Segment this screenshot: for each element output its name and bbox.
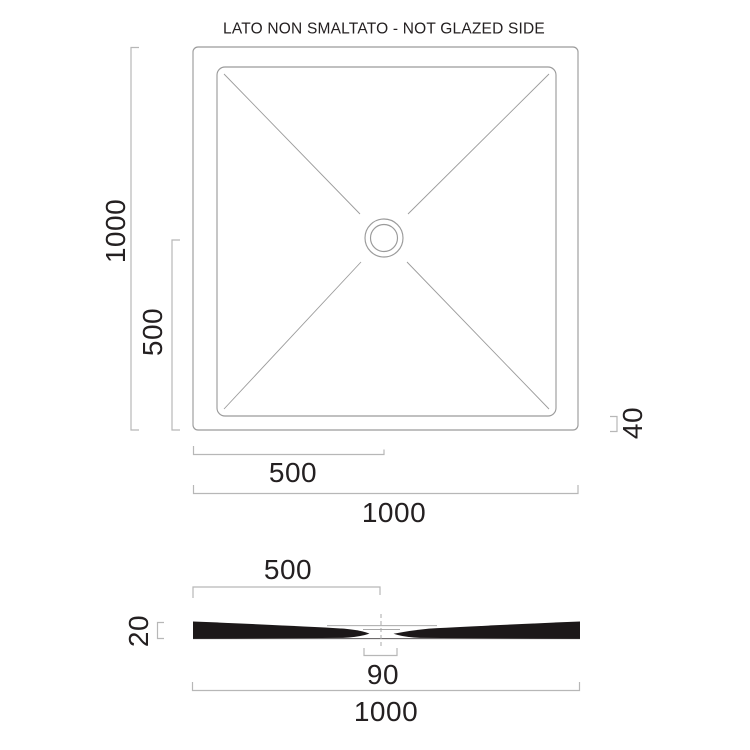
dim-label-plan-width-half: 500	[269, 459, 317, 487]
slope-diagonal-bottom-left	[224, 262, 361, 409]
dim-bracket-section-drain-width	[364, 648, 397, 656]
dim-label-plan-height-half: 500	[139, 308, 167, 356]
section-profile-left	[193, 622, 370, 639]
dim-bracket-section-thickness	[158, 623, 165, 639]
dim-label-section-width-total: 1000	[354, 698, 418, 726]
drawing-title: LATO NON SMALTATO - NOT GLAZED SIDE	[223, 21, 545, 37]
technical-drawing-sheet: LATO NON SMALTATO - NOT GLAZED SIDE 1000…	[0, 0, 750, 750]
tray-outer-rim	[193, 47, 578, 430]
dim-bracket-plan-width-total	[194, 485, 579, 494]
dim-label-plan-width-total: 1000	[362, 499, 426, 527]
plan-view	[131, 47, 617, 494]
slope-diagonal-top-left	[224, 74, 360, 214]
slope-diagonal-bottom-right	[407, 262, 549, 409]
drawing-linework	[0, 0, 750, 750]
dim-bracket-plan-edge-height	[610, 417, 617, 432]
dim-label-section-width-half: 500	[264, 556, 312, 584]
dim-bracket-plan-height-total	[131, 48, 139, 431]
dim-bracket-section-width-half	[193, 587, 380, 598]
dim-label-plan-height-total: 1000	[102, 199, 130, 263]
drain-inner-circle	[371, 225, 398, 252]
dim-bracket-plan-width-half	[194, 446, 385, 455]
dim-label-plan-edge-height: 40	[619, 407, 647, 439]
dim-bracket-plan-height-half	[172, 240, 180, 430]
section-profile-right	[394, 622, 581, 639]
dim-label-section-thickness: 20	[125, 615, 153, 647]
slope-diagonal-top-right	[408, 74, 549, 214]
dim-label-section-drain-width: 90	[367, 661, 399, 689]
